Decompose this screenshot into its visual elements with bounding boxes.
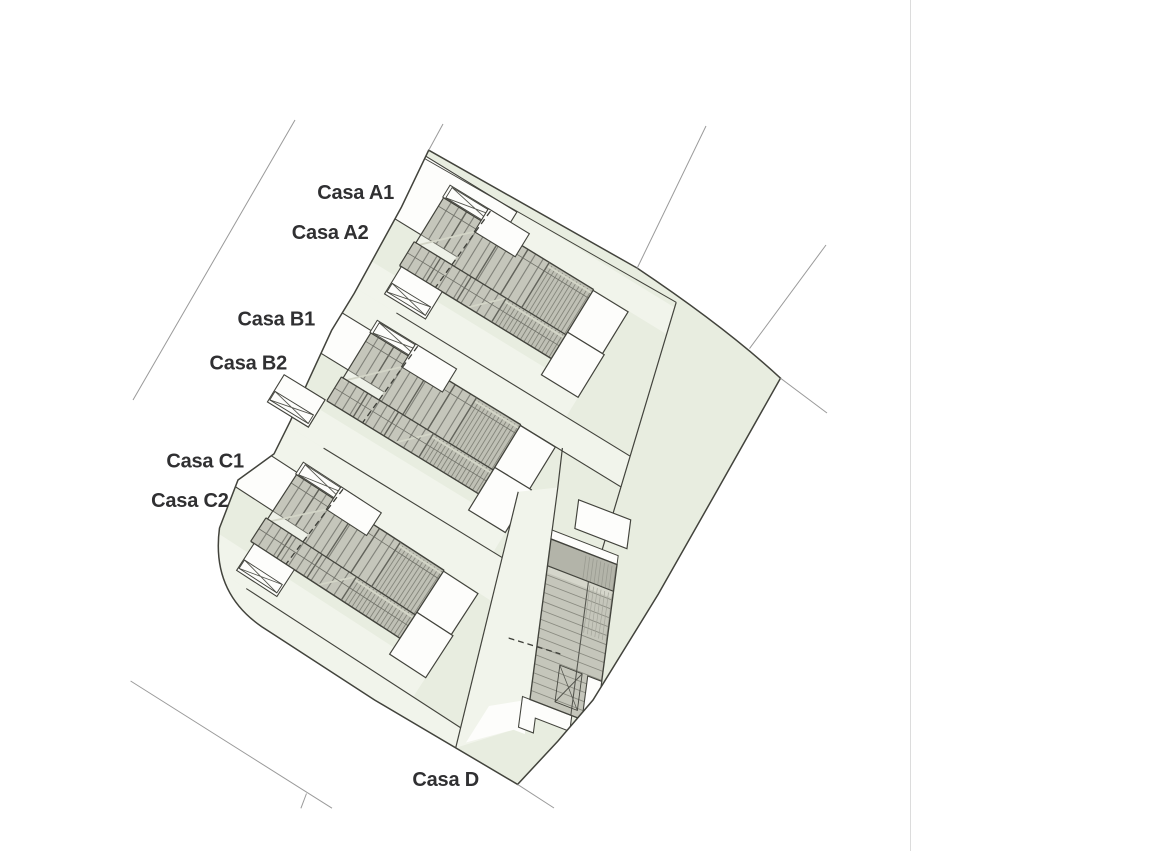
svg-text:Casa A2: Casa A2 [292,222,369,244]
svg-text:Casa D: Casa D [412,769,479,791]
svg-text:Casa B1: Casa B1 [238,309,316,331]
svg-text:Casa C1: Casa C1 [166,450,244,472]
svg-text:Casa A1: Casa A1 [317,182,394,204]
svg-text:Casa B2: Casa B2 [210,353,288,375]
svg-text:Casa C2: Casa C2 [151,490,229,512]
